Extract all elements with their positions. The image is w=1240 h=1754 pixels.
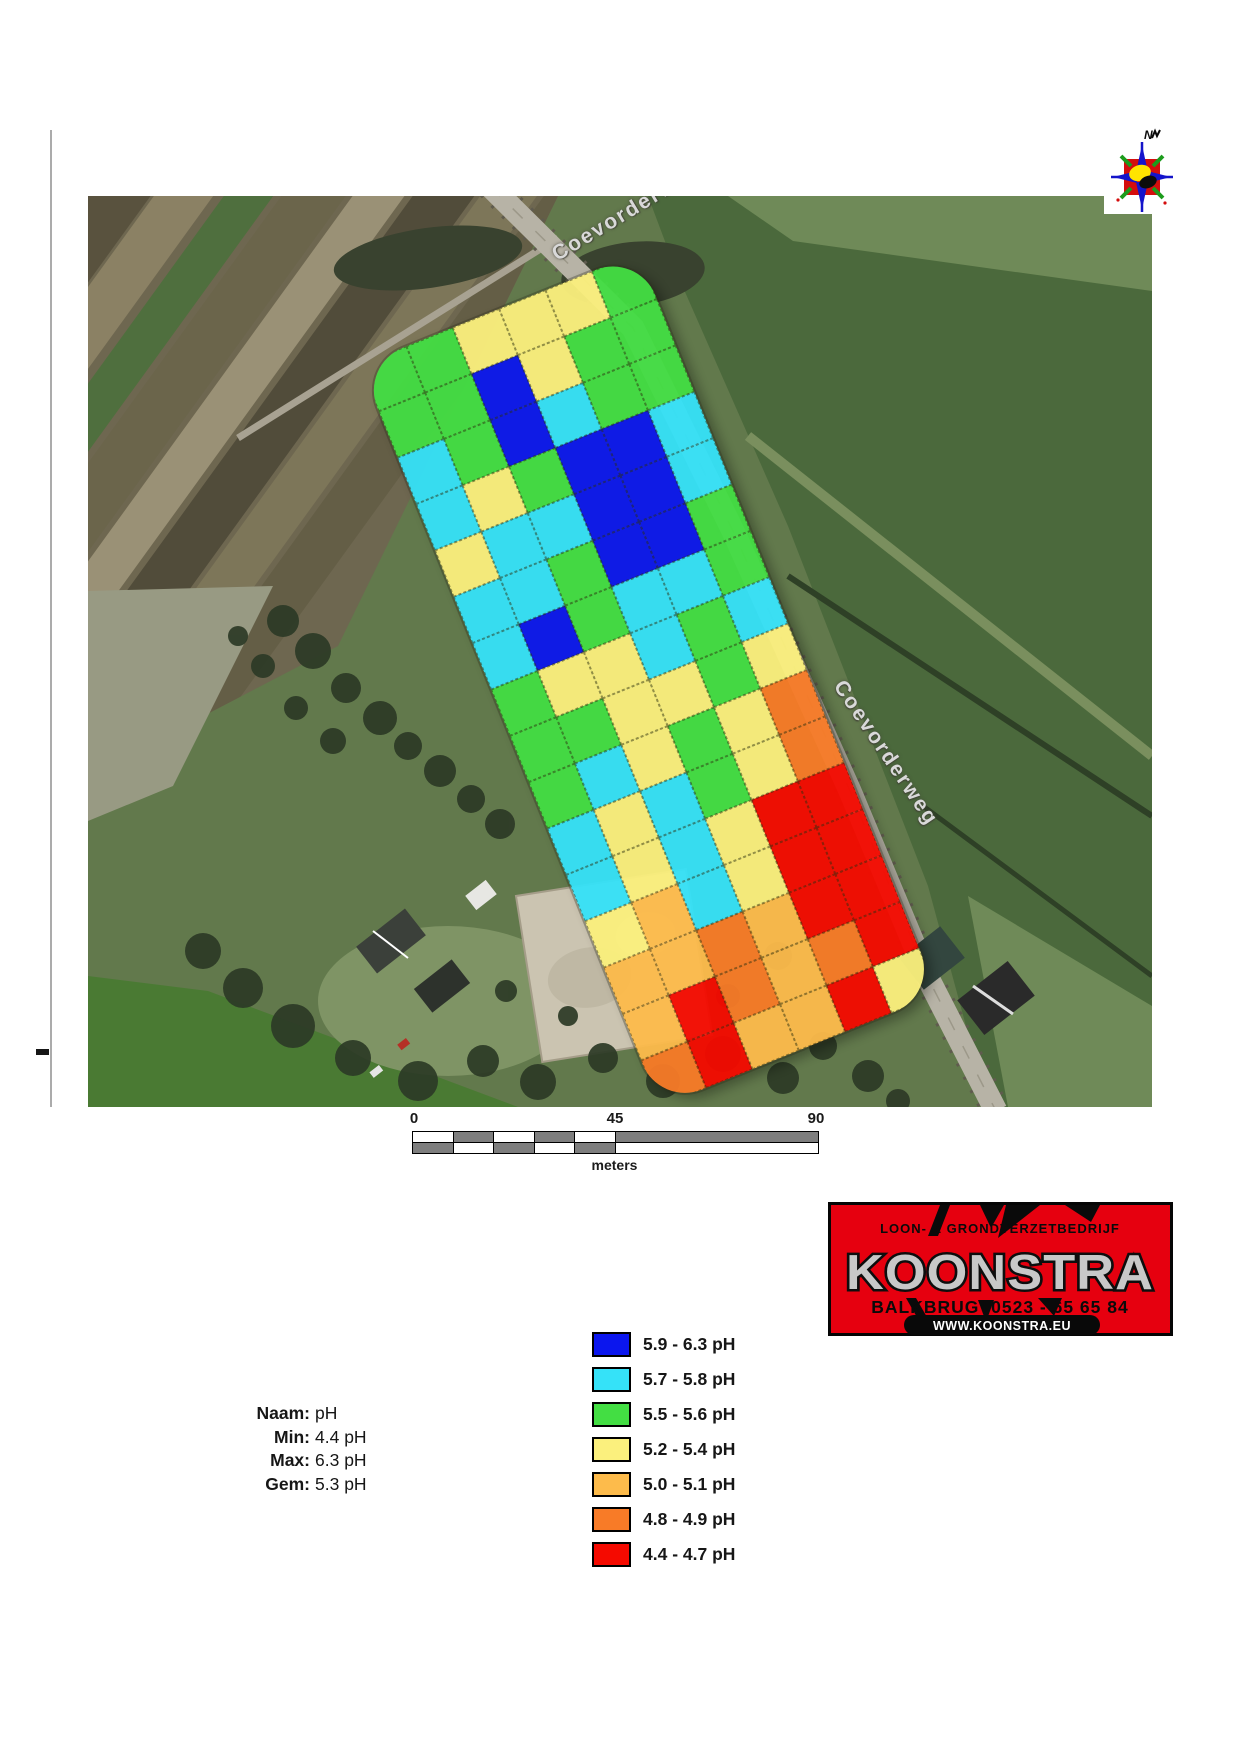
scalebar-ticks: 0 45 90: [412, 1110, 818, 1131]
stats-row-max: Max: 6.3 pH: [198, 1449, 367, 1473]
legend-swatch: [592, 1402, 631, 1427]
stats-value: 6.3 pH: [315, 1449, 367, 1473]
stats-label: Gem:: [198, 1473, 310, 1497]
stats-row-naam: Naam: pH: [198, 1402, 367, 1426]
legend-item: 5.0 - 5.1 pH: [592, 1472, 735, 1497]
legend-swatch: [592, 1542, 631, 1567]
legend-swatch: [592, 1367, 631, 1392]
compass-north-label: N: [1144, 128, 1153, 142]
logo-website: WWW.KOONSTRA.EU: [933, 1319, 1071, 1333]
legend-item: 4.4 - 4.7 pH: [592, 1542, 735, 1567]
legend-label: 5.7 - 5.8 pH: [643, 1369, 735, 1390]
stats-row-gem: Gem: 5.3 pH: [198, 1473, 367, 1497]
scalebar-unit-label: meters: [412, 1157, 817, 1173]
compass-rose: N: [1108, 128, 1176, 216]
legend-swatch: [592, 1332, 631, 1357]
legend-item: 5.5 - 5.6 pH: [592, 1402, 735, 1427]
scalebar-segment: [616, 1143, 819, 1153]
legend-label: 5.2 - 5.4 pH: [643, 1439, 735, 1460]
scalebar-segment: [413, 1132, 454, 1142]
scalebar-segment: [454, 1143, 495, 1153]
legend-item: 4.8 - 4.9 pH: [592, 1507, 735, 1532]
company-logo: LOON- & GRONDVERZETBEDRIJF KOONSTRA BALK…: [828, 1202, 1173, 1336]
scalebar-tick-0: 0: [410, 1110, 418, 1127]
map-scalebar: 0 45 90 meters: [412, 1110, 818, 1173]
page-border-line: [50, 130, 52, 1107]
legend-item: 5.2 - 5.4 pH: [592, 1437, 735, 1462]
stats-label: Naam:: [198, 1402, 310, 1426]
logo-company-name: KOONSTRA: [846, 1246, 1154, 1300]
legend-label: 4.4 - 4.7 pH: [643, 1544, 735, 1565]
legend-item: 5.9 - 6.3 pH: [592, 1332, 735, 1357]
legend-label: 5.0 - 5.1 pH: [643, 1474, 735, 1495]
scalebar-segment: [575, 1143, 616, 1153]
company-logo-graphic: LOON- & GRONDVERZETBEDRIJF KOONSTRA BALK…: [828, 1202, 1173, 1336]
stats-value: 4.4 pH: [315, 1426, 367, 1450]
page-corner-mark: [36, 1049, 49, 1055]
stats-value: pH: [315, 1402, 337, 1426]
stats-row-min: Min: 4.4 pH: [198, 1426, 367, 1450]
legend-panel: 5.9 - 6.3 pH5.7 - 5.8 pH5.5 - 5.6 pH5.2 …: [592, 1332, 735, 1577]
scalebar-tick-90: 90: [808, 1110, 825, 1127]
legend-swatch: [592, 1472, 631, 1497]
aerial-map: Coevorderweg Coevorderweg: [88, 196, 1152, 1107]
scalebar-segment: [413, 1143, 454, 1153]
scalebar-bar: [412, 1131, 819, 1154]
legend-swatch: [592, 1507, 631, 1532]
scalebar-segment: [535, 1132, 576, 1142]
stats-label: Max:: [198, 1449, 310, 1473]
legend-label: 5.9 - 6.3 pH: [643, 1334, 735, 1355]
scalebar-segment: [575, 1132, 616, 1142]
scalebar-segment: [616, 1132, 819, 1142]
scalebar-tick-45: 45: [607, 1110, 624, 1127]
stats-panel: Naam: pH Min: 4.4 pH Max: 6.3 pH Gem: 5.…: [198, 1402, 367, 1496]
scalebar-segment: [494, 1143, 535, 1153]
scalebar-row: [413, 1143, 818, 1153]
stats-label: Min:: [198, 1426, 310, 1450]
scalebar-segment: [454, 1132, 495, 1142]
scalebar-segment: [535, 1143, 576, 1153]
legend-swatch: [592, 1437, 631, 1462]
legend-label: 5.5 - 5.6 pH: [643, 1404, 735, 1425]
logo-tagline: LOON- & GRONDVERZETBEDRIJF: [880, 1221, 1120, 1236]
legend-item: 5.7 - 5.8 pH: [592, 1367, 735, 1392]
scalebar-row: [413, 1132, 818, 1143]
page: Coevorderweg Coevorderweg N 0 45 90 mete…: [0, 0, 1240, 1754]
stats-value: 5.3 pH: [315, 1473, 367, 1497]
legend-label: 4.8 - 4.9 pH: [643, 1509, 735, 1530]
legend-items: 5.9 - 6.3 pH5.7 - 5.8 pH5.5 - 5.6 pH5.2 …: [592, 1332, 735, 1567]
scalebar-segment: [494, 1132, 535, 1142]
logo-phone: BALKBRUG 0523 - 65 65 84: [871, 1297, 1128, 1317]
